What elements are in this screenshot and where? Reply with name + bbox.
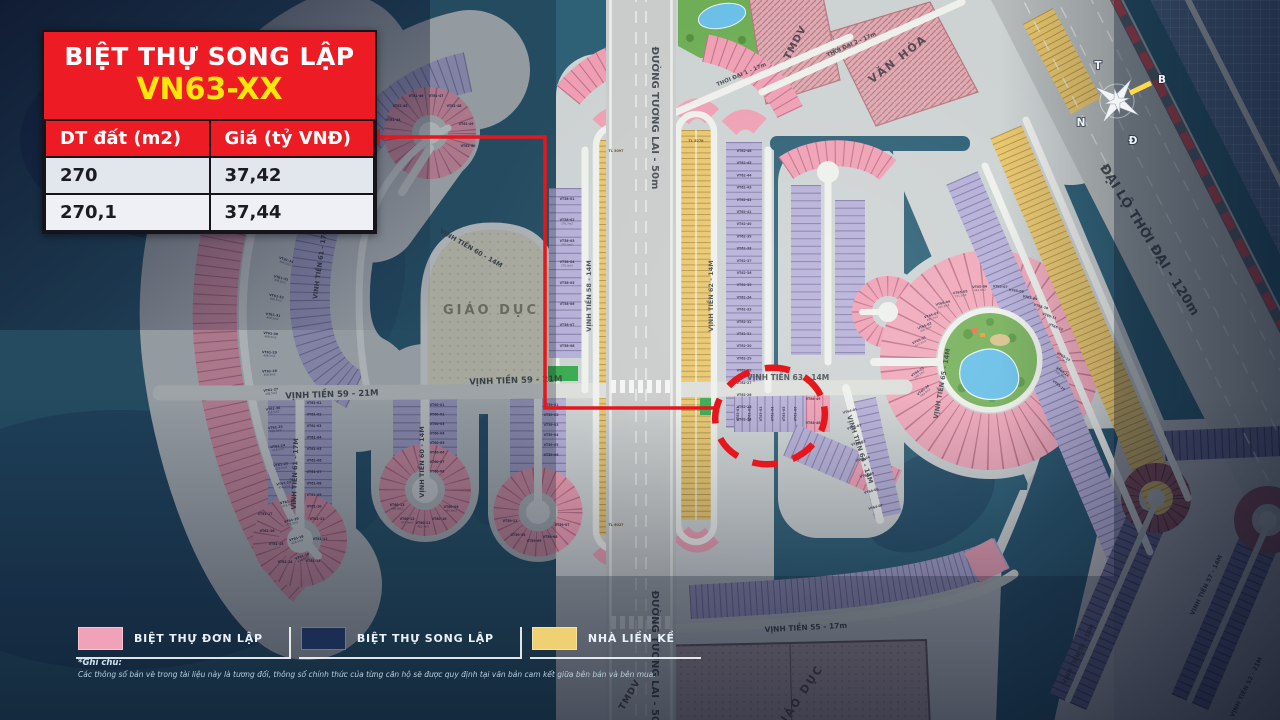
legend-item: BIỆT THỰ ĐƠN LẬP xyxy=(76,627,291,659)
compass-letter: B xyxy=(1158,74,1166,86)
info-box-title: BIỆT THỰ SONG LẬP xyxy=(48,41,371,72)
price-value: 37,44 xyxy=(210,194,375,231)
legend-label: BIỆT THỰ ĐƠN LẬP xyxy=(134,632,263,645)
price-value: 37,42 xyxy=(210,157,375,194)
footnote-title: *Ghi chú: xyxy=(78,658,656,668)
legend-label: BIỆT THỰ SONG LẬP xyxy=(357,632,494,645)
legend-swatch-icon xyxy=(301,627,346,650)
area-value: 270 xyxy=(45,157,210,194)
footnote-text: Các thông số bản vẽ trong tài liệu này l… xyxy=(78,670,656,679)
table-row: 270 37,42 xyxy=(45,157,374,194)
price-table-header-area: DT đất (m2) xyxy=(45,120,210,157)
compass-letter: N xyxy=(1077,117,1086,129)
compass-letter: T xyxy=(1094,60,1102,72)
footnote: *Ghi chú: Các thông số bản vẽ trong tài … xyxy=(78,658,656,679)
legend-item: NHÀ LIỀN KỀ xyxy=(530,627,701,659)
price-table: DT đất (m2) Giá (tỷ VNĐ) 270 37,42 270,1… xyxy=(44,119,375,232)
area-value: 270,1 xyxy=(45,194,210,231)
info-box-code: VN63-XX xyxy=(48,72,371,108)
legend: BIỆT THỰ ĐƠN LẬPBIỆT THỰ SONG LẬPNHÀ LIỀ… xyxy=(76,627,703,659)
legend-swatch-icon xyxy=(78,627,123,650)
compass-letter: Đ xyxy=(1129,135,1138,147)
legend-label: NHÀ LIỀN KỀ xyxy=(588,632,675,645)
legend-swatch-icon xyxy=(532,627,577,650)
price-table-header-price: Giá (tỷ VNĐ) xyxy=(210,120,375,157)
table-row: 270,1 37,44 xyxy=(45,194,374,231)
info-box: BIỆT THỰ SONG LẬP VN63-XX DT đất (m2) Gi… xyxy=(42,30,377,234)
masterplan-screenshot: VT61-34408.5m2VT61-33408.5m2VT61-32408.5… xyxy=(0,0,1280,720)
legend-item: BIỆT THỰ SONG LẬP xyxy=(299,627,522,659)
info-box-header: BIỆT THỰ SONG LẬP VN63-XX xyxy=(44,32,375,119)
